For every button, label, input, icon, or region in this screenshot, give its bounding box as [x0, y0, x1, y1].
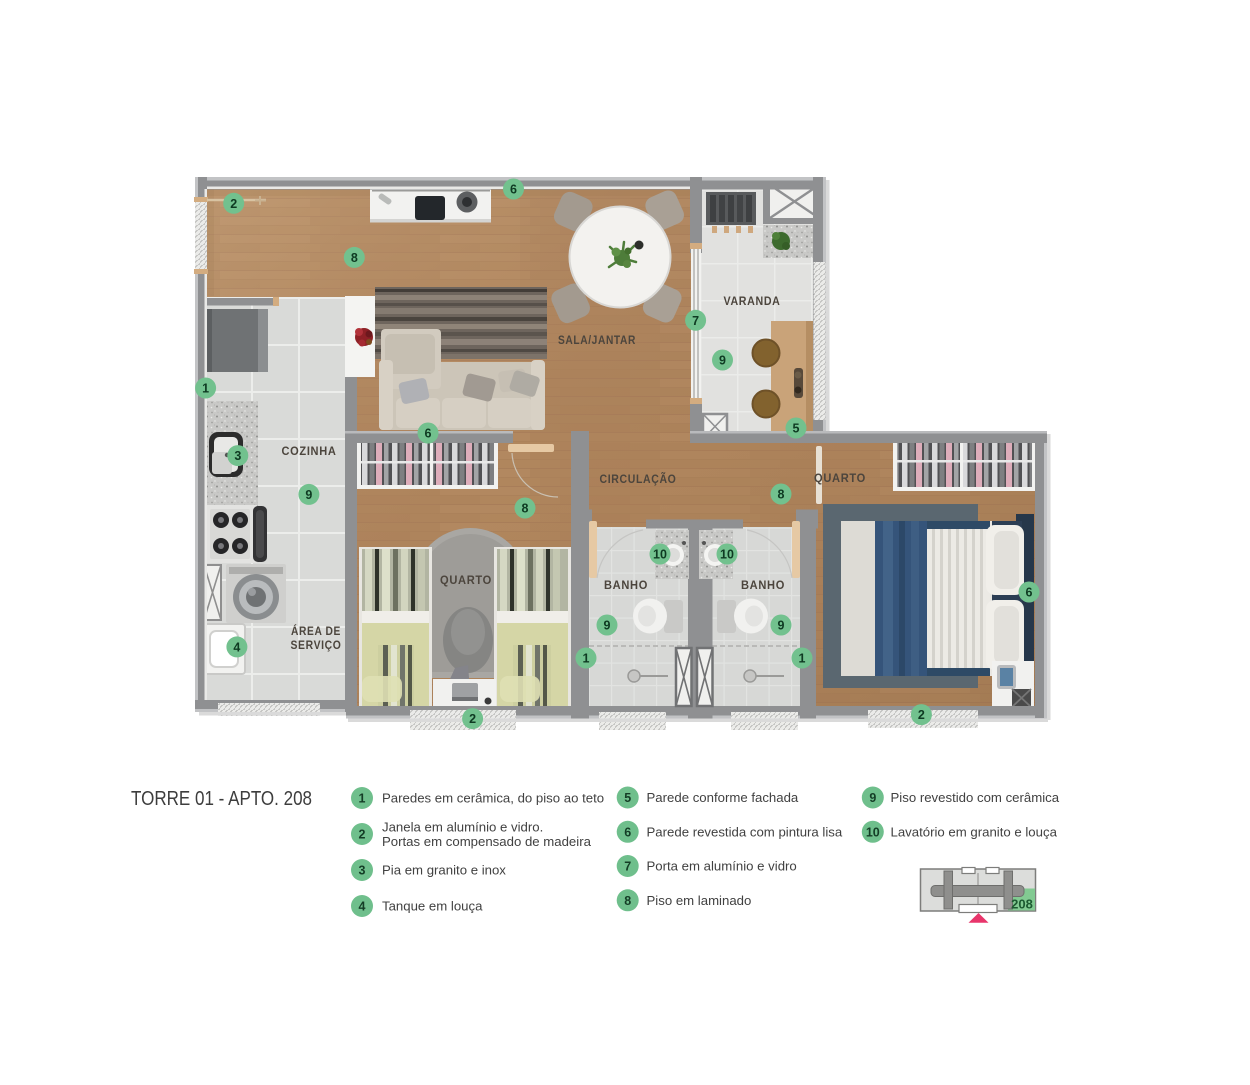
- svg-text:2: 2: [359, 828, 366, 842]
- svg-text:9: 9: [719, 354, 726, 368]
- svg-text:1: 1: [799, 652, 806, 666]
- svg-text:7: 7: [624, 860, 631, 874]
- svg-text:4: 4: [359, 900, 366, 914]
- svg-text:9: 9: [604, 619, 611, 633]
- svg-text:10: 10: [720, 548, 734, 562]
- svg-text:5: 5: [793, 422, 800, 436]
- svg-text:1: 1: [359, 792, 366, 806]
- svg-text:Lavatório em granito e louça: Lavatório em granito e louça: [891, 824, 1058, 839]
- svg-text:COZINHA: COZINHA: [282, 446, 337, 458]
- svg-text:6: 6: [1026, 586, 1033, 600]
- svg-text:SALA/JANTAR: SALA/JANTAR: [558, 335, 636, 347]
- svg-text:1: 1: [583, 652, 590, 666]
- svg-text:TORRE 01 - APTO. 208: TORRE 01 - APTO. 208: [131, 788, 312, 810]
- svg-text:SERVIÇO: SERVIÇO: [291, 640, 342, 652]
- svg-text:3: 3: [359, 864, 366, 878]
- svg-text:9: 9: [778, 619, 785, 633]
- svg-text:6: 6: [510, 183, 517, 197]
- svg-text:Tanque em louça: Tanque em louça: [382, 899, 483, 914]
- svg-text:2: 2: [918, 708, 925, 722]
- svg-text:5: 5: [624, 791, 631, 805]
- svg-text:2: 2: [230, 197, 237, 211]
- svg-text:2: 2: [469, 712, 476, 726]
- svg-text:10: 10: [653, 548, 667, 562]
- svg-text:6: 6: [624, 825, 631, 839]
- svg-text:Parede revestida com pintura l: Parede revestida com pintura lisa: [647, 824, 843, 839]
- svg-text:Janela em alumínio e vidro.: Janela em alumínio e vidro.: [382, 820, 543, 835]
- svg-text:BANHO: BANHO: [604, 580, 648, 592]
- svg-text:9: 9: [869, 791, 876, 805]
- svg-text:9: 9: [305, 488, 312, 502]
- svg-text:BANHO: BANHO: [741, 580, 785, 592]
- svg-text:QUARTO: QUARTO: [814, 473, 866, 485]
- svg-text:8: 8: [522, 502, 529, 516]
- svg-text:Piso revestido com cerâmica: Piso revestido com cerâmica: [891, 790, 1060, 805]
- svg-text:8: 8: [351, 251, 358, 265]
- svg-text:3: 3: [234, 449, 241, 463]
- svg-text:10: 10: [866, 825, 880, 839]
- svg-text:6: 6: [425, 427, 432, 441]
- svg-text:Parede conforme fachada: Parede conforme fachada: [647, 790, 799, 805]
- svg-text:Portas em compensado de madeir: Portas em compensado de madeira: [382, 834, 592, 849]
- svg-text:7: 7: [692, 314, 699, 328]
- svg-text:Porta em alumínio e vidro: Porta em alumínio e vidro: [647, 859, 797, 874]
- svg-text:Piso em laminado: Piso em laminado: [647, 893, 752, 908]
- svg-text:Paredes em cerâmica, do piso a: Paredes em cerâmica, do piso ao teto: [382, 791, 604, 806]
- svg-text:QUARTO: QUARTO: [440, 575, 492, 587]
- svg-text:4: 4: [233, 640, 240, 654]
- svg-text:Pia em granito e inox: Pia em granito e inox: [382, 863, 506, 878]
- svg-text:208: 208: [1011, 897, 1033, 912]
- svg-text:ÁREA DE: ÁREA DE: [291, 625, 341, 638]
- svg-text:VARANDA: VARANDA: [724, 296, 781, 308]
- svg-text:1: 1: [202, 382, 209, 396]
- svg-text:8: 8: [778, 488, 785, 502]
- svg-text:8: 8: [624, 894, 631, 908]
- svg-text:CIRCULAÇÃO: CIRCULAÇÃO: [600, 473, 677, 486]
